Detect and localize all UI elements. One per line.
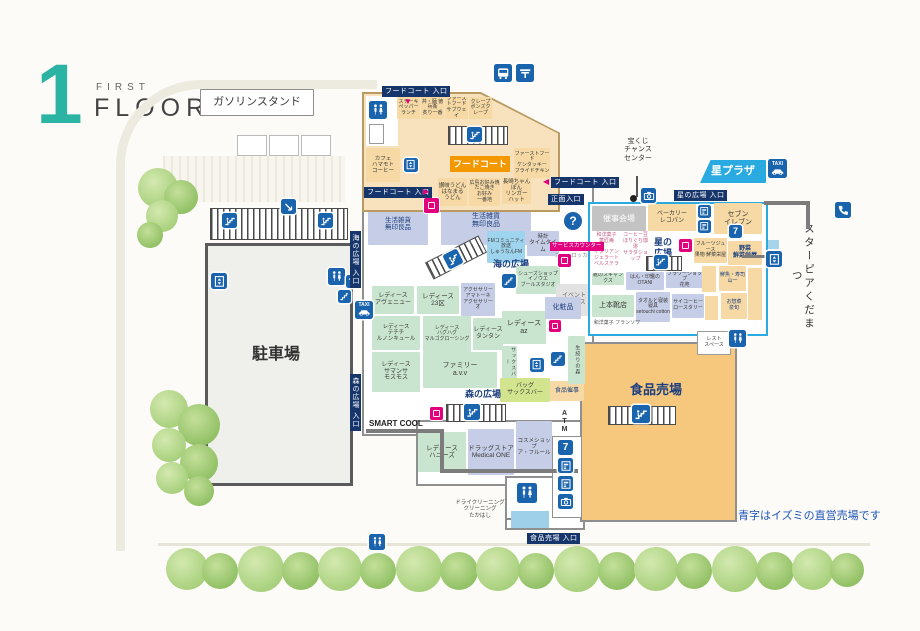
tree bbox=[756, 552, 794, 590]
store-logo-badge bbox=[430, 407, 443, 420]
store-hughug: レディース ハグハグ マルゴクローシング bbox=[423, 316, 471, 352]
food-court-shop: ファーストフード サブウェイ bbox=[445, 97, 468, 119]
store-fruits-sensai: フルーツジュース 果物 鮮菜栄屋 bbox=[694, 238, 727, 263]
cleaning-shop-label: ドライクリーニング クリーニング たかはし bbox=[452, 500, 508, 519]
floor-map: 1 FIRST FLOOR ガソリンスタンド 駐車場 TAXI ステーキ ペッパ… bbox=[0, 0, 920, 631]
tree bbox=[598, 552, 636, 590]
tree bbox=[202, 553, 238, 589]
lottery-center-label: 宝くじ チャンス センター bbox=[612, 138, 664, 163]
restroom-icon bbox=[517, 483, 537, 503]
store-samansa: レディース サマンサ モスモス bbox=[372, 352, 420, 392]
lottery-pointer-line bbox=[636, 176, 638, 197]
escalator-icon bbox=[318, 213, 333, 228]
tree bbox=[238, 546, 284, 592]
restroom-icon bbox=[729, 330, 746, 347]
tree bbox=[440, 552, 478, 590]
store-az: レディース az bbox=[502, 311, 546, 344]
stairs-icon bbox=[338, 290, 351, 303]
store-inoue: シューズショップ イノウエ ブールスタジオ bbox=[516, 266, 560, 294]
elevator-icon bbox=[404, 158, 418, 172]
gas-station-building bbox=[269, 135, 299, 156]
cleaning-shop-block bbox=[511, 511, 549, 528]
entrance-food-floor: 食品売場 入口 bbox=[527, 533, 580, 544]
store-yamaichi: 鮮魚・寿司 山一 bbox=[719, 266, 746, 291]
store-juice-mori: 生絞りの森 bbox=[568, 336, 585, 384]
store-uemoto-shoes: 上本靴店 bbox=[592, 295, 634, 317]
parking-label: 駐車場 bbox=[238, 346, 314, 365]
food-court-shop-cafe: カフェ ハマモト コーヒー bbox=[366, 148, 400, 182]
store-gelato: イタリアン ジェラート ベルステラ bbox=[592, 250, 621, 268]
walk-path bbox=[806, 203, 810, 229]
gas-station-building bbox=[237, 135, 267, 156]
event-hall: 催事会場 bbox=[592, 206, 646, 231]
hoshi-plaza-tab: 星プラザ bbox=[700, 160, 766, 183]
taxi-icon: TAXI bbox=[355, 301, 373, 319]
lottery-pointer-dot bbox=[630, 195, 637, 202]
store-setouchi-cotton: タオルと寝装寝具 setouchi cotton bbox=[636, 292, 670, 322]
stairs-icon bbox=[551, 352, 565, 366]
store-veggie-sensai: 野菜 鮮菜栄屋 bbox=[728, 241, 762, 265]
camera-icon bbox=[641, 188, 656, 203]
tree bbox=[634, 547, 678, 591]
star-pia-label: スターピアくだまつ bbox=[797, 222, 815, 332]
arrow-right-icon: ▶ bbox=[423, 188, 429, 196]
food-floor-area bbox=[580, 342, 737, 522]
atm-label: ATM bbox=[556, 408, 568, 436]
entrance-hoshi-plaza: 星の広場 入口 bbox=[674, 190, 727, 201]
tree bbox=[676, 553, 712, 589]
phone-icon bbox=[835, 202, 851, 218]
atm-icon bbox=[558, 476, 573, 491]
elevator-icon bbox=[211, 273, 227, 289]
food-court-shop: 丼・麺 徳兵衛 炙り一番 bbox=[421, 97, 444, 119]
tree bbox=[137, 222, 163, 248]
food-event-space: 食品催事 bbox=[550, 381, 584, 401]
store-izushun: お惣菜 泉旬 bbox=[721, 293, 747, 319]
mori-plaza-label: 森の広場 bbox=[452, 389, 514, 400]
escalator-icon bbox=[464, 404, 480, 420]
food-court-shop-okonomi: 広島お好み焼 たこ焼き お好み 一番地 bbox=[469, 178, 500, 206]
store-avenue: レディース アヴェニュー bbox=[372, 286, 414, 314]
shop-block bbox=[705, 296, 718, 320]
tree bbox=[830, 553, 864, 587]
smart-cool-label: SMART COOL bbox=[369, 419, 439, 428]
tree bbox=[184, 476, 214, 506]
gas-station-building bbox=[301, 135, 331, 156]
tree bbox=[518, 553, 554, 589]
food-court-shop-kfc: ファーストフード ケンタッキー フライドチキン bbox=[514, 148, 550, 178]
restroom-icon bbox=[369, 101, 387, 119]
shop-block bbox=[702, 266, 716, 292]
rest-space: レスト スペース bbox=[697, 331, 731, 355]
bus-icon bbox=[494, 64, 512, 82]
escalator-icon bbox=[654, 255, 668, 269]
tree bbox=[396, 546, 442, 592]
store-logo-badge bbox=[549, 320, 561, 332]
food-court-shop: クレープ ポンズクレープ bbox=[469, 97, 492, 119]
legend-note: 青字はイズミの直営売場です bbox=[738, 510, 916, 523]
seven-bank-atm-icon: 7 bbox=[729, 225, 742, 238]
entrance-umi-plaza: 海の広場 入口 bbox=[350, 231, 361, 288]
tree bbox=[554, 546, 600, 592]
entrance-mori-plaza: 森の広場 入口 bbox=[350, 374, 361, 431]
atm-icon bbox=[698, 205, 711, 218]
ramp-icon bbox=[281, 199, 296, 214]
entrance-main: 正面入口 bbox=[548, 194, 584, 205]
photo-booth-icon bbox=[558, 494, 573, 509]
boundary-fence bbox=[440, 429, 444, 473]
elevator-icon bbox=[766, 251, 782, 267]
escalator-icon bbox=[632, 405, 650, 423]
escalator-icon bbox=[222, 213, 237, 228]
store-sacsbar-small: サックスバー bbox=[502, 346, 517, 378]
tree bbox=[282, 552, 320, 590]
store-francois-label: 和洋菓子 フランソワ bbox=[590, 321, 644, 327]
gas-station-label: ガソリンスタンド bbox=[200, 89, 314, 116]
taxi-icon: TAXI bbox=[768, 159, 787, 178]
store-coffee-beans: コーヒー豆 ほりぐち珈琲 bbox=[622, 233, 649, 251]
stairs-icon bbox=[502, 274, 516, 288]
restroom-icon bbox=[369, 534, 385, 550]
store-avv: ファミリー a.v.v bbox=[423, 352, 497, 388]
food-floor-label: 食品売場 bbox=[616, 382, 696, 397]
escalator-icon bbox=[467, 127, 482, 142]
store-otani: はん・印鑑の OTANI bbox=[626, 272, 664, 290]
floor-word-first: FIRST bbox=[96, 82, 150, 93]
tree bbox=[792, 548, 834, 590]
tree bbox=[476, 547, 520, 591]
store-logo-badge bbox=[679, 239, 692, 252]
tree bbox=[360, 553, 396, 589]
tree bbox=[318, 547, 362, 591]
arrow-down-icon: ▼ bbox=[404, 98, 412, 106]
entrance-foodcourt-right: フードコート 入口 bbox=[551, 177, 619, 188]
store-shoes-strip: 靴のスキャンクス bbox=[592, 273, 624, 285]
information-icon: ? bbox=[564, 212, 582, 230]
store-flower-shop: フラワーショップ 花苑 bbox=[666, 272, 703, 288]
walk-path bbox=[764, 201, 810, 205]
walk-path bbox=[742, 255, 766, 258]
store-techichi: レディース テチチ ルノンキュール bbox=[372, 316, 420, 350]
seven-icon-text: 7 bbox=[733, 227, 738, 236]
seven-bank-atm-icon: 7 bbox=[558, 440, 573, 455]
store-logo-badge bbox=[558, 254, 571, 267]
atm-icon bbox=[558, 458, 573, 473]
store-logo-badge bbox=[424, 198, 439, 213]
entrance-foodcourt-top: フードコート 入口 bbox=[382, 86, 450, 97]
atm-icon bbox=[698, 220, 711, 233]
store-amatone: アクセサリー アマトーネ アクセサリーオ bbox=[461, 283, 495, 316]
seven-icon-text: 7 bbox=[563, 443, 569, 453]
boundary-fence bbox=[366, 429, 444, 433]
arrow-left-icon: ◀ bbox=[543, 178, 549, 186]
store-tantan: レディース タンタン bbox=[473, 318, 503, 350]
floor-number: 1 bbox=[36, 52, 92, 152]
stairwell bbox=[369, 124, 384, 144]
restroom-icon bbox=[328, 268, 345, 285]
food-court-shop-ringer: 長崎ちゃんぽん リンガー ハット bbox=[502, 178, 531, 204]
store-cosmetics: 化粧品 bbox=[545, 297, 581, 319]
post-icon bbox=[516, 64, 534, 82]
service-counter-label: サービスカウンター bbox=[550, 242, 604, 251]
shop-block bbox=[748, 268, 762, 320]
tree bbox=[712, 546, 758, 592]
store-23ku: レディース 23区 bbox=[417, 286, 459, 314]
store-afleur: コスメショップ ア・フルール bbox=[516, 421, 552, 473]
food-court-shop-udon: 讃岐うどん はなまる うどん bbox=[438, 178, 467, 206]
store-bakery-lecopain: ベーカリー レコパン bbox=[648, 204, 696, 231]
store-salad-shop: サラダショップ bbox=[622, 251, 649, 263]
food-court-badge: フードコート bbox=[450, 156, 510, 172]
information-icon-text: ? bbox=[569, 215, 576, 227]
elevator-icon bbox=[530, 358, 544, 372]
store-sai-coffee: サイコーヒー ロースタリー bbox=[672, 294, 704, 318]
